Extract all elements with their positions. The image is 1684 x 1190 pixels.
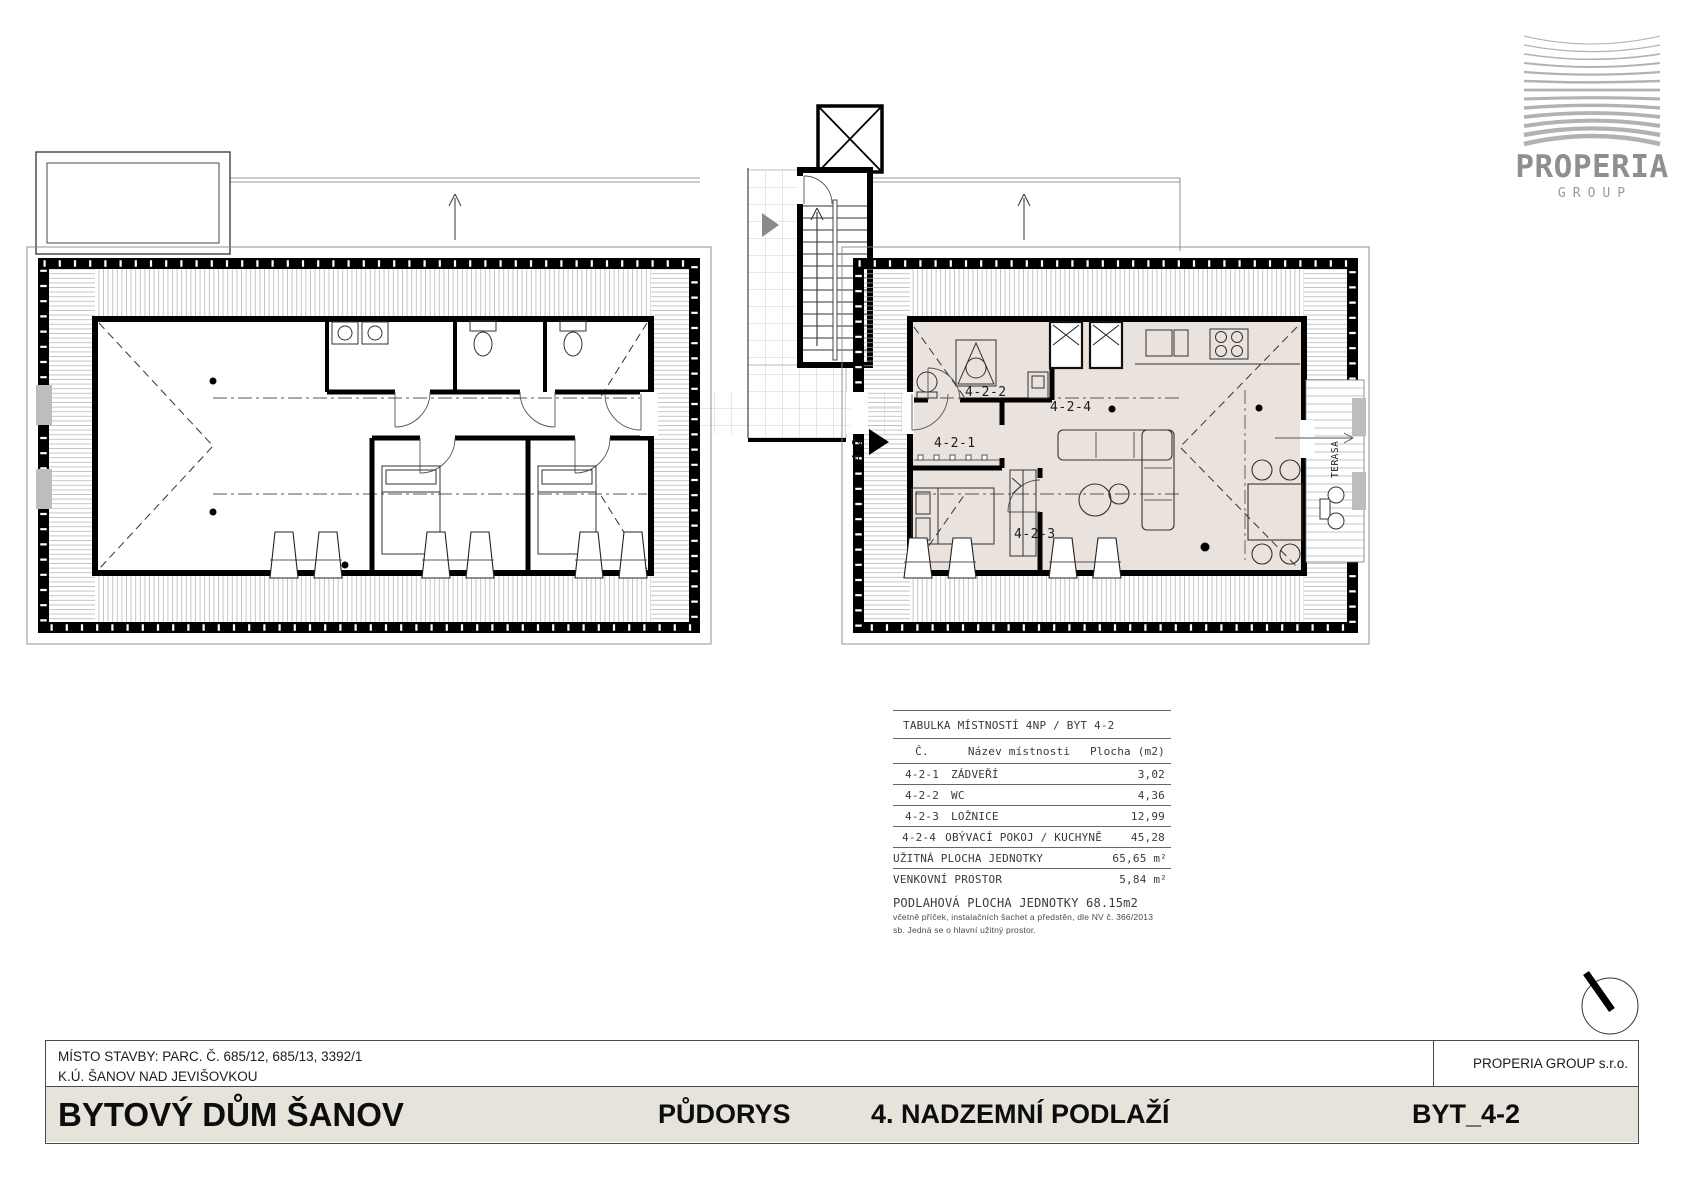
terrace: TERASA — [1306, 380, 1366, 562]
room-label-4-2-4: 4-2-4 — [1050, 400, 1092, 415]
roof-direction-arrows — [127, 194, 1030, 240]
room-name: WC — [951, 789, 1095, 802]
room-label-4-2-3: 4-2-3 — [1014, 527, 1056, 542]
floorplan-sheet: PROPERIA GROUP — [0, 0, 1684, 1190]
room-table: TABULKA MÍSTNOSTÍ 4NP / BYT 4-2 Č. Název… — [893, 710, 1171, 935]
room-number: 4-2-2 — [893, 789, 951, 802]
table-row: 4-2-3 LOŽNICE 12,99 — [893, 806, 1171, 827]
room-table-header: Č. Název místnosti Plocha (m2) — [893, 739, 1171, 764]
room-number: 4-2-4 — [893, 831, 945, 844]
summary-label: UŽITNÁ PLOCHA JEDNOTKY — [893, 852, 1093, 865]
left-wing — [27, 247, 711, 644]
terrace-label: TERASA — [1330, 441, 1341, 478]
col-header-area: Plocha (m2) — [1087, 745, 1167, 758]
company-name: PROPERIA GROUP s.r.o. — [1433, 1041, 1638, 1086]
summary-value: 65,65 m² — [1093, 852, 1167, 865]
properia-logo: PROPERIA GROUP — [1515, 36, 1668, 201]
room-area: 45,28 — [1102, 831, 1167, 844]
table-footnote: sb. Jedná se o hlavní užitný prostor. — [893, 925, 1171, 936]
site-info: MÍSTO STAVBY: PARC. Č. 685/12, 685/13, 3… — [46, 1041, 1433, 1086]
unit-entry-label: 4-2 — [850, 438, 864, 461]
room-area: 3,02 — [1095, 768, 1167, 781]
north-arrow-icon — [1582, 973, 1638, 1034]
summary-row: UŽITNÁ PLOCHA JEDNOTKY 65,65 m² — [893, 848, 1171, 869]
room-name: OBÝVACÍ POKOJ / KUCHYNĚ — [945, 831, 1102, 844]
title-block: MÍSTO STAVBY: PARC. Č. 685/12, 685/13, 3… — [45, 1040, 1639, 1144]
unit-title: BYT_4-2 — [1412, 1087, 1520, 1142]
summary-value: 5,84 m² — [1093, 873, 1167, 886]
summary-row: VENKOVNÍ PROSTOR 5,84 m² — [893, 869, 1171, 889]
drawing-type: PŮDORYS — [658, 1087, 791, 1142]
table-row: 4-2-1 ZÁDVEŘÍ 3,02 — [893, 764, 1171, 785]
window-block — [36, 469, 52, 509]
elevator-shaft — [818, 106, 882, 172]
table-row: 4-2-4 OBÝVACÍ POKOJ / KUCHYNĚ 45,28 — [893, 827, 1171, 848]
site-line-2: K.Ú. ŠANOV NAD JEVIŠOVKOU — [58, 1067, 1421, 1087]
room-name: LOŽNICE — [951, 810, 1095, 823]
room-number: 4-2-3 — [893, 810, 951, 823]
summary-label: VENKOVNÍ PROSTOR — [893, 873, 1093, 886]
floor-title: 4. NADZEMNÍ PODLAŽÍ — [871, 1087, 1170, 1142]
title-block-top-row: MÍSTO STAVBY: PARC. Č. 685/12, 685/13, 3… — [46, 1041, 1638, 1087]
window-block — [36, 385, 52, 425]
room-table-title: TABULKA MÍSTNOSTÍ 4NP / BYT 4-2 — [893, 710, 1171, 739]
logo-name: PROPERIA — [1515, 149, 1668, 185]
floor-plan-drawing: PROPERIA GROUP — [0, 0, 1684, 1190]
roof-terrace-box — [36, 152, 230, 254]
room-label-4-2-1: 4-2-1 — [934, 436, 976, 451]
room-area: 4,36 — [1095, 789, 1167, 802]
room-label-4-2-2: 4-2-2 — [965, 385, 1007, 400]
title-block-bottom-row: BYTOVÝ DŮM ŠANOV PŮDORYS 4. NADZEMNÍ POD… — [46, 1087, 1638, 1142]
site-line-1: MÍSTO STAVBY: PARC. Č. 685/12, 685/13, 3… — [58, 1047, 1421, 1067]
col-header-name: Název místnosti — [951, 745, 1087, 758]
table-footnote: včetně příček, instalačních šachet a pře… — [893, 912, 1171, 923]
room-number: 4-2-1 — [893, 768, 951, 781]
room-area: 12,99 — [1095, 810, 1167, 823]
right-wing: TERASA — [842, 247, 1369, 644]
room-name: ZÁDVEŘÍ — [951, 768, 1095, 781]
roof-edge-lines — [230, 178, 1180, 251]
project-title: BYTOVÝ DŮM ŠANOV — [58, 1087, 404, 1142]
table-row: 4-2-2 WC 4,36 — [893, 785, 1171, 806]
col-header-number: Č. — [893, 745, 951, 758]
logo-subtitle: GROUP — [1558, 186, 1632, 201]
floor-area-total: PODLAHOVÁ PLOCHA JEDNOTKY 68.15m2 — [893, 896, 1171, 910]
